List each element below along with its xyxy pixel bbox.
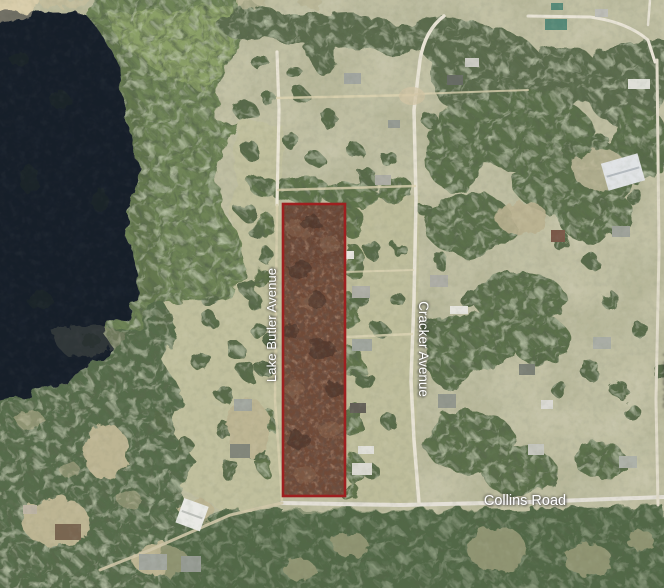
svg-text:Lake Butler Avenue: Lake Butler Avenue bbox=[264, 268, 279, 382]
svg-text:Cracker Avenue: Cracker Avenue bbox=[416, 301, 431, 397]
svg-text:Collins Road: Collins Road bbox=[484, 493, 566, 509]
